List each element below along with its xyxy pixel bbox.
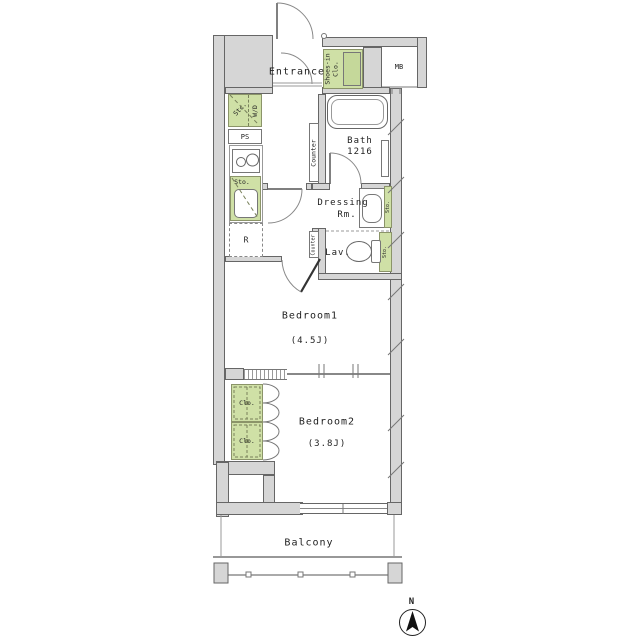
wall-bath-left xyxy=(318,94,326,184)
wall-jut-vertical xyxy=(263,475,275,505)
counter-upper-label: Counter xyxy=(310,139,318,166)
wall-mb-right xyxy=(417,37,427,88)
meter-box-label: MB xyxy=(395,63,403,71)
rail-mark-2 xyxy=(298,572,303,577)
partition-line xyxy=(287,373,390,375)
bedroom1-size-label: (4.5J) xyxy=(291,336,330,346)
kitchen-sink xyxy=(234,189,258,218)
wall-hall-stub-2 xyxy=(306,183,312,190)
bedroom2-label: Bedroom2 xyxy=(299,417,355,428)
dressing-label-1: Dressing xyxy=(317,198,368,208)
wall-right xyxy=(390,88,402,515)
partition-window xyxy=(244,369,287,380)
washstand-storage-label: Sto. xyxy=(385,201,391,213)
entrance-step xyxy=(273,83,322,86)
wall-bottom-2 xyxy=(387,502,402,515)
closet-upper-label: Clo. xyxy=(239,399,255,407)
balcony-post-right xyxy=(388,563,402,583)
shoes-closet-line2: Clo. xyxy=(332,53,340,84)
dressing-label-2: Rm. xyxy=(337,210,356,220)
bath-size-label: 1216 xyxy=(347,147,373,157)
partition-ticks xyxy=(319,364,358,378)
wall-kitchen-top xyxy=(225,87,273,94)
bedroom1-door-arc xyxy=(282,260,301,292)
closet-bifold-doors xyxy=(263,384,279,460)
washer-dryer-space: W/D xyxy=(248,95,261,126)
washer-dryer-label: W/D xyxy=(251,105,259,117)
wall-top-right xyxy=(322,37,427,47)
shoes-closet-door xyxy=(343,52,361,86)
toilet-tank xyxy=(371,240,381,263)
balcony-window-rail xyxy=(300,508,387,509)
pipe-space-label: PS xyxy=(241,133,249,141)
wall-left xyxy=(213,35,225,465)
balcony-side-lines xyxy=(221,515,394,556)
refrigerator-label: R xyxy=(244,236,249,245)
bathtub-inner xyxy=(331,99,384,125)
stove xyxy=(232,149,260,173)
closet-lower-label: Clo. xyxy=(239,437,255,445)
entrance-label: Entrance xyxy=(269,67,325,78)
dressing-door-arc xyxy=(268,189,302,223)
rail-mark-3 xyxy=(350,572,355,577)
counter-lower: Counter xyxy=(309,231,319,258)
balcony-post-left xyxy=(214,563,228,583)
wall-bottom-1 xyxy=(216,502,303,515)
counter-upper: Counter xyxy=(309,123,319,182)
bath-shelf xyxy=(381,140,389,177)
bedroom1-label: Bedroom1 xyxy=(282,311,338,322)
rail-mark-1 xyxy=(246,572,251,577)
entrance-door-arc xyxy=(277,3,313,39)
counter-lower-label: Counter xyxy=(311,234,317,255)
balcony-label: Balcony xyxy=(284,538,333,549)
wall-shoes-right xyxy=(363,47,382,88)
bedroom2-size-label: (3.8J) xyxy=(308,439,347,449)
floor-plan: Shoes-in Clo. W/D Stc. PS Sto. R Counter… xyxy=(0,0,640,639)
lavatory-label: Lav. xyxy=(325,248,351,258)
washstand-storage: Sto. xyxy=(384,186,392,228)
compass-circle xyxy=(399,609,426,636)
wall-lav-bottom xyxy=(318,273,402,280)
lavatory-storage-label: Sto. xyxy=(383,246,389,258)
wall-partition-left xyxy=(225,368,244,380)
wall-bath-dressing-1 xyxy=(312,183,330,190)
compass-north-label: N xyxy=(409,597,415,607)
bathtub xyxy=(327,95,388,129)
bath-label: Bath xyxy=(347,136,373,146)
bath-door-arc xyxy=(330,153,361,184)
kitchen-storage-label: Sto. xyxy=(234,178,250,186)
balcony-window xyxy=(300,503,387,514)
